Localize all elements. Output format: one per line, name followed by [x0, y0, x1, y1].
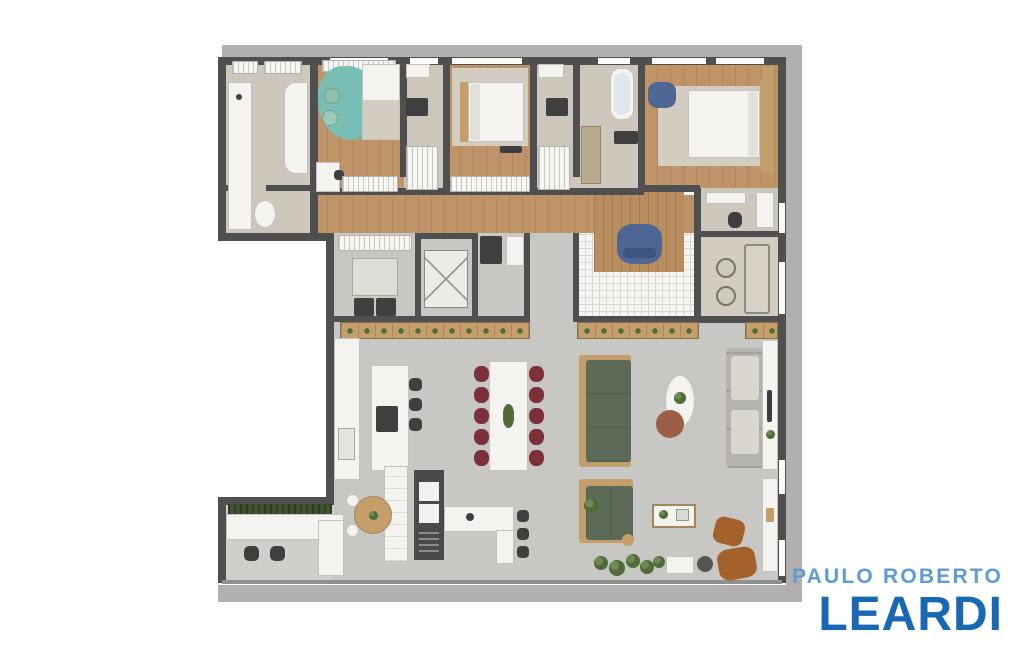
wall	[218, 233, 334, 241]
window	[598, 58, 630, 64]
lounge-cushion	[731, 410, 759, 454]
toilet	[254, 200, 276, 228]
window	[716, 58, 764, 64]
washer	[354, 298, 374, 316]
bar-stool	[409, 418, 422, 431]
dresser	[546, 98, 568, 116]
brand-logo-line1: PAULO ROBERTO	[792, 566, 1003, 587]
wall	[310, 57, 318, 233]
den-chair	[716, 258, 736, 278]
sofa-green	[586, 360, 631, 462]
wc-toilet	[728, 212, 742, 228]
oven	[419, 482, 439, 501]
wall	[638, 57, 645, 188]
brand-logo-line2: LEARDI	[792, 591, 1003, 639]
bed-pillows	[748, 92, 758, 156]
dining-chair	[529, 429, 544, 445]
shower	[228, 82, 252, 230]
bar-faucet	[466, 513, 474, 521]
tv	[767, 390, 772, 422]
bar-stool	[517, 528, 529, 540]
plant	[626, 554, 640, 568]
pantry-appliance	[480, 236, 502, 264]
breakfast-chair	[346, 494, 359, 507]
wall	[573, 57, 580, 177]
dresser	[406, 98, 428, 116]
plant	[594, 556, 608, 570]
dining-chair	[529, 408, 544, 424]
wall	[700, 231, 778, 237]
kitchen-sink	[338, 428, 355, 460]
lounge-chair-seat	[623, 248, 656, 258]
slab-band-right	[786, 45, 802, 585]
den-chair	[716, 286, 736, 306]
oven-vents	[419, 530, 439, 552]
wall	[218, 497, 226, 583]
wall	[573, 233, 579, 322]
brand-logo: PAULO ROBERTO LEARDI	[792, 566, 1003, 639]
terrace-stool	[270, 546, 285, 561]
dining-chair	[529, 450, 544, 466]
elevator	[424, 250, 468, 308]
pouf	[324, 88, 340, 104]
dining-chair	[474, 408, 489, 424]
wall	[218, 57, 226, 240]
lounge-cushion	[731, 356, 759, 400]
table-centerpiece	[503, 404, 514, 428]
bed-pillows	[470, 84, 480, 140]
headboard	[460, 82, 468, 142]
vanity-bench	[614, 131, 638, 144]
terrace-counter	[318, 520, 344, 576]
coffee-table-plant	[674, 392, 686, 404]
dining-chair	[474, 450, 489, 466]
wall	[326, 233, 334, 505]
planter-box	[577, 322, 699, 339]
window	[779, 203, 785, 233]
shower-head-icon	[236, 94, 242, 100]
bathroom-sink	[538, 64, 564, 78]
wc-shower	[756, 192, 774, 228]
laundry-counter	[338, 235, 412, 251]
side-table	[622, 534, 634, 546]
armchair-blue	[648, 82, 676, 108]
tray-table	[666, 556, 694, 574]
dryer	[376, 298, 396, 316]
master-vanity	[581, 126, 601, 184]
plant	[640, 560, 654, 574]
bed-blanket	[363, 100, 399, 139]
oven	[419, 504, 439, 523]
window	[452, 58, 522, 64]
bed-bench	[500, 146, 522, 153]
dining-chair	[474, 387, 489, 403]
hedge-planter	[228, 504, 332, 514]
planter-box	[340, 322, 530, 339]
den-loveseat	[744, 244, 770, 314]
pouf	[322, 110, 338, 126]
bathroom-sink	[406, 64, 430, 78]
wardrobe	[406, 146, 438, 190]
nightstand	[762, 160, 774, 173]
wall	[530, 57, 537, 195]
bathroom-shelf	[232, 61, 258, 74]
wc-sink	[706, 192, 746, 204]
wardrobe	[342, 176, 398, 192]
slab-band-top	[222, 45, 802, 57]
dining-chair	[529, 366, 544, 382]
bar-stool	[517, 510, 529, 522]
cabinet	[762, 478, 778, 572]
wall	[443, 57, 450, 195]
table-plant	[369, 511, 378, 520]
window	[779, 540, 785, 576]
breakfast-chair	[346, 524, 359, 537]
terrace-stool	[244, 546, 259, 561]
dining-chair	[474, 429, 489, 445]
wall	[266, 185, 310, 191]
cooktop	[376, 406, 398, 432]
wall	[524, 233, 530, 322]
window	[652, 58, 706, 64]
headboard-wall	[760, 80, 774, 172]
wall	[472, 233, 478, 322]
plant	[766, 430, 775, 439]
table-tray	[676, 509, 689, 521]
sofa-green	[586, 486, 633, 540]
dining-chair	[529, 387, 544, 403]
plant	[584, 498, 599, 513]
floor-plan	[0, 0, 1024, 655]
bar-stool	[517, 546, 529, 558]
lounge-chair-blue	[617, 224, 662, 264]
wall	[778, 57, 786, 583]
bathroom-shelf	[264, 61, 302, 74]
plant	[653, 556, 665, 568]
wall	[694, 188, 701, 322]
table-plant	[659, 510, 668, 519]
wardrobe	[450, 176, 530, 192]
wall	[415, 233, 421, 322]
planter-box	[745, 322, 778, 339]
bar-stool	[409, 398, 422, 411]
wall	[415, 233, 478, 239]
bar-stool	[409, 378, 422, 391]
window	[779, 262, 785, 314]
bathtub-inner	[614, 73, 630, 115]
wall	[644, 185, 700, 192]
wardrobe	[538, 146, 570, 190]
slab-band-bottom	[218, 585, 802, 602]
terrace-railing	[222, 580, 782, 584]
nightstand	[762, 66, 774, 79]
plant	[609, 560, 625, 576]
pantry-counter	[506, 236, 524, 266]
side-table-dark	[697, 556, 713, 572]
pouf-terracotta	[656, 410, 684, 438]
dining-chair	[474, 366, 489, 382]
cabinet-item	[766, 508, 774, 522]
bar-counter	[496, 530, 514, 564]
bathroom-vanity	[284, 82, 308, 174]
window	[779, 460, 785, 494]
bar-counter	[444, 506, 514, 532]
laundry-table	[352, 258, 398, 296]
